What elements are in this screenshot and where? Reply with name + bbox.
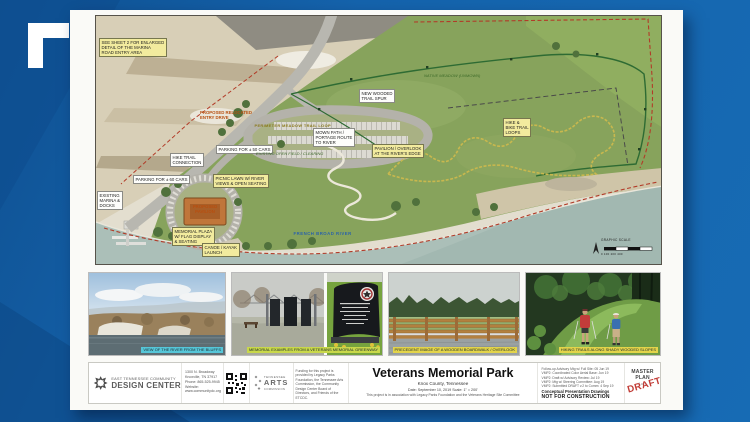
org-name-line2: DESIGN CENTER — [111, 381, 181, 390]
association-note: This project is in association with Lega… — [349, 393, 536, 397]
map-label-native-meadow: NATIVE MEADOW (UNMOWN) — [424, 74, 480, 79]
boardwalk-image — [389, 273, 520, 356]
map-label-parking-lower: PARKING FOR ± 60 CARS — [133, 175, 190, 184]
hiking-trail-image — [526, 273, 661, 356]
photo-caption: VIEW OF THE RIVER FROM THE BLUFFS — [141, 347, 223, 353]
funding-credit-text: Funding for this project is provided by … — [293, 363, 349, 403]
qr-code-icon — [226, 373, 247, 394]
org-address: 1300 N. Broadway Knoxville, TN 37917 Pho… — [181, 363, 223, 403]
design-center-logo-block: EAST TENNESSEE COMMUNITY DESIGN CENTER — [89, 363, 181, 403]
map-label-meadow-loop: PERIMETER MEADOW TRAIL LOOP — [253, 123, 332, 130]
map-label-marina-enlargement: SEE SHEET 2 FOR ENLARGED DETAIL OF THE M… — [99, 38, 167, 57]
master-plan-sheet: SEE SHEET 2 FOR ENLARGED DETAIL OF THE M… — [70, 10, 683, 410]
memorial-examples-image — [232, 273, 383, 356]
photo-caption: PRECEDENT IMAGE OF A WOODEN BOARDWALK / … — [393, 347, 517, 353]
arts-commission-logo-block: TENNESSEE ARTS COMMISSION — [249, 363, 293, 403]
photo-caption: HIKING TRAILS ALONG SHADY WOODED SLOPES — [559, 347, 658, 353]
date-and-scale: Date: September 10, 2019 Scale: 1" = 200… — [349, 388, 536, 392]
corner-bracket-graphic — [28, 23, 69, 68]
map-label-portage-route: MOWN PATH / PORTAGE ROUTE TO RIVER — [313, 128, 355, 147]
map-label-wooded-trail: NEW WOODED TRAIL SPUR — [359, 89, 395, 103]
project-title-block: Veterans Memorial Park Knox County, Tenn… — [348, 363, 536, 403]
map-label-pavilion: PROPOSED PAVILION — [184, 204, 226, 214]
map-label-kayak-launch: CANOE / KAYAK LAUNCH — [202, 243, 240, 257]
photo-caption: MEMORIAL EXAMPLES FROM A VETERANS MEMORI… — [247, 347, 380, 353]
project-location: Knox County, Tennessee — [349, 381, 536, 386]
arts-line2: ARTS — [264, 379, 288, 386]
map-label-bike-loops: HIKE & BIKE TRAIL LOOPS — [503, 118, 531, 137]
photo-river-bluffs: VIEW OF THE RIVER FROM THE BLUFFS — [88, 272, 226, 356]
graphic-scale-label: GRAPHIC SCALE — [601, 238, 631, 242]
news-graphic-background: SEE SHEET 2 FOR ENLARGED DETAIL OF THE M… — [0, 0, 750, 422]
arts-line3: COMMISSION — [264, 387, 288, 391]
river-bluffs-image — [89, 273, 226, 356]
site-plan-map: SEE SHEET 2 FOR ENLARGED DETAIL OF THE M… — [95, 15, 662, 265]
photo-hiking-trail: HIKING TRAILS ALONG SHADY WOODED SLOPES — [525, 272, 661, 356]
photo-memorial-examples: MEMORIAL EXAMPLES FROM A VETERANS MEMORI… — [231, 272, 383, 356]
revision-list: Follow-up Advisory Mtg w/ Full Site: 05 … — [542, 367, 623, 388]
design-center-pinwheel-logo-icon — [93, 373, 108, 393]
project-title: Veterans Memorial Park — [349, 367, 536, 380]
map-label-open-field: EXISTING OPEN FIELD / CLEARING — [256, 152, 323, 157]
map-label-marina: EXISTING MARINA & DOCKS — [97, 191, 123, 210]
photo-boardwalk-overlook: PRECEDENT IMAGE OF A WOODEN BOARDWALK / … — [388, 272, 520, 356]
map-label-entry-drive: PROPOSED RELOCATED ENTRY DRIVE — [200, 110, 252, 120]
not-for-construction-note: NOT FOR CONSTRUCTION — [542, 394, 623, 400]
sheet-name-block: MASTER PLAN 1 of 1 DRAFT — [624, 363, 660, 403]
map-label-picnic-lawn: PICNIC LAWN W/ RIVER VIEWS & OPEN SEATIN… — [213, 174, 269, 188]
qr-code-block — [223, 363, 249, 403]
graphic-scale-numbers: 0 100 200 400 — [601, 252, 623, 256]
map-label-hike-connection: HIKE TRAIL CONNECTION — [170, 153, 204, 167]
arts-commission-stars-icon — [254, 375, 262, 391]
map-label-river-overlook: PAVILION / OVERLOOK AT THE RIVER'S EDGE — [372, 144, 424, 158]
title-block: EAST TENNESSEE COMMUNITY DESIGN CENTER 1… — [88, 362, 661, 404]
map-label-river-name: FRENCH BROAD RIVER — [292, 230, 353, 237]
revision-notes-block: Follow-up Advisory Mtg w/ Full Site: 05 … — [537, 363, 625, 403]
